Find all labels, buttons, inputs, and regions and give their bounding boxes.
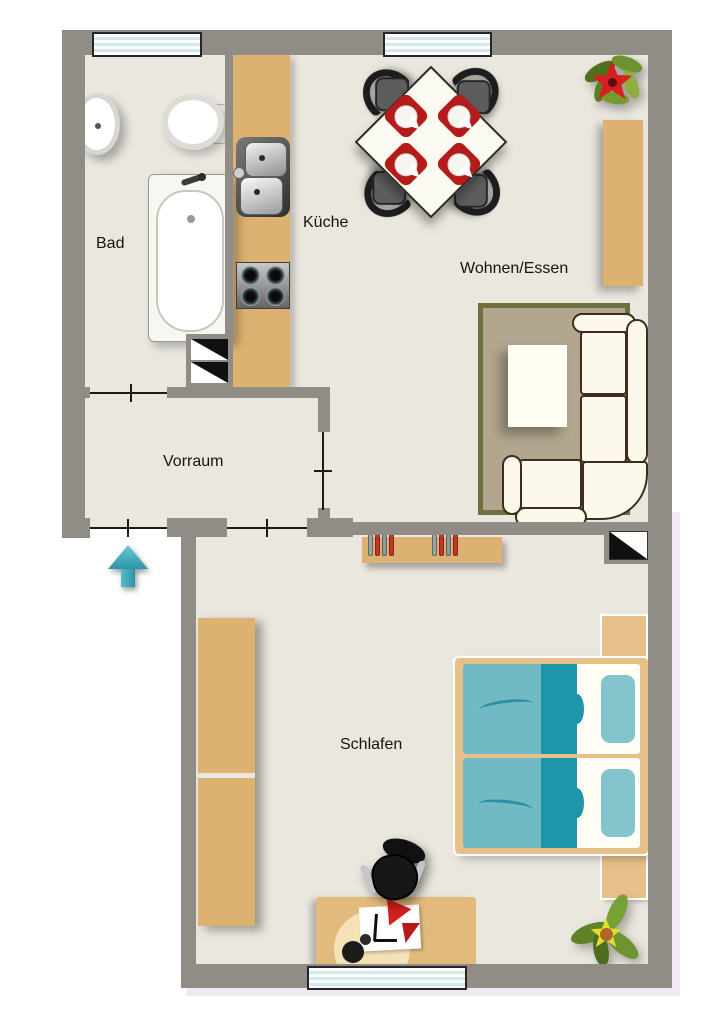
desk <box>316 897 476 967</box>
wall-entry-corner <box>62 518 90 538</box>
bed-mattress <box>463 664 640 754</box>
wall-right <box>648 30 672 988</box>
bathtub-faucet-knob <box>198 173 206 181</box>
door-wohnen-tick <box>314 470 332 472</box>
sideboard <box>603 120 643 286</box>
sofa-backrest <box>626 319 648 465</box>
burner-icon <box>241 266 260 285</box>
door-bad-tick <box>130 384 132 402</box>
kitchen-sink-drain-bottom <box>254 189 260 195</box>
room-label-kueche: Küche <box>303 214 348 232</box>
wall-bad-vorraum <box>62 387 90 398</box>
bath-sink-drain <box>95 123 101 129</box>
kitchen-faucet-icon <box>233 167 245 179</box>
nightstand <box>602 856 646 898</box>
kitchen-sink-basin-bottom <box>240 177 283 215</box>
room-label-schlafen: Schlafen <box>340 736 402 754</box>
bed-pillow <box>601 769 635 837</box>
stove <box>236 262 290 309</box>
window-wohnen <box>383 32 492 57</box>
desk-lamp-icon <box>342 941 364 963</box>
shaft-symbol-icon <box>191 339 228 360</box>
sofa-arm <box>502 455 522 515</box>
door-bad <box>90 392 167 394</box>
room-label-vorraum: Vorraum <box>163 453 223 471</box>
wall-vorraum-bottom <box>167 518 227 537</box>
shaft-symbol-icon <box>609 531 648 560</box>
kitchen-sink-basin-top <box>245 142 287 177</box>
bed-pillow <box>601 675 635 743</box>
floor-plan: Bad Küche Wohnen/Essen Vorraum Schlafen <box>0 0 723 1024</box>
window-schlafen <box>307 966 467 990</box>
kitchen-sink-drain-top <box>259 155 265 161</box>
kitchen-sink-unit <box>236 137 290 217</box>
burner-icon <box>266 287 285 306</box>
shaft-symbol-icon <box>191 362 228 383</box>
bathtub-drain <box>187 215 195 223</box>
wall-bad-vorraum <box>167 387 330 398</box>
door-entrance-tick <box>127 519 129 537</box>
double-bed <box>455 658 648 854</box>
door-schlafen-tick <box>266 519 268 537</box>
window-bad <box>92 32 202 57</box>
plant-red-flower <box>583 52 649 114</box>
desk-pen <box>374 939 397 942</box>
coffee-table <box>508 345 567 427</box>
wardrobe <box>198 618 255 926</box>
sofa-seat <box>519 459 582 509</box>
burner-icon <box>241 287 260 306</box>
desk-lamp-arm <box>360 934 371 945</box>
office-chair <box>362 838 426 904</box>
sofa-seat <box>580 395 627 463</box>
toilet-bowl <box>162 94 224 150</box>
entrance-arrow-icon <box>108 545 148 587</box>
bookshelf <box>362 537 502 563</box>
nightstand <box>602 616 646 657</box>
wall-left <box>62 30 85 538</box>
bathtub-inner <box>156 190 224 332</box>
bathtub <box>148 174 234 342</box>
wall-bedroom-left <box>181 522 196 988</box>
burner-icon <box>266 266 285 285</box>
kitchen-counter <box>233 55 290 387</box>
facade-trim <box>672 512 680 996</box>
room-label-wohnen-essen: Wohnen/Essen <box>460 260 568 278</box>
bed-mattress <box>463 758 640 848</box>
wall-vorraum-right <box>318 387 330 432</box>
room-label-bad: Bad <box>96 235 124 253</box>
sofa-seat <box>580 331 627 395</box>
wall-vorraum-bottom <box>307 518 353 537</box>
